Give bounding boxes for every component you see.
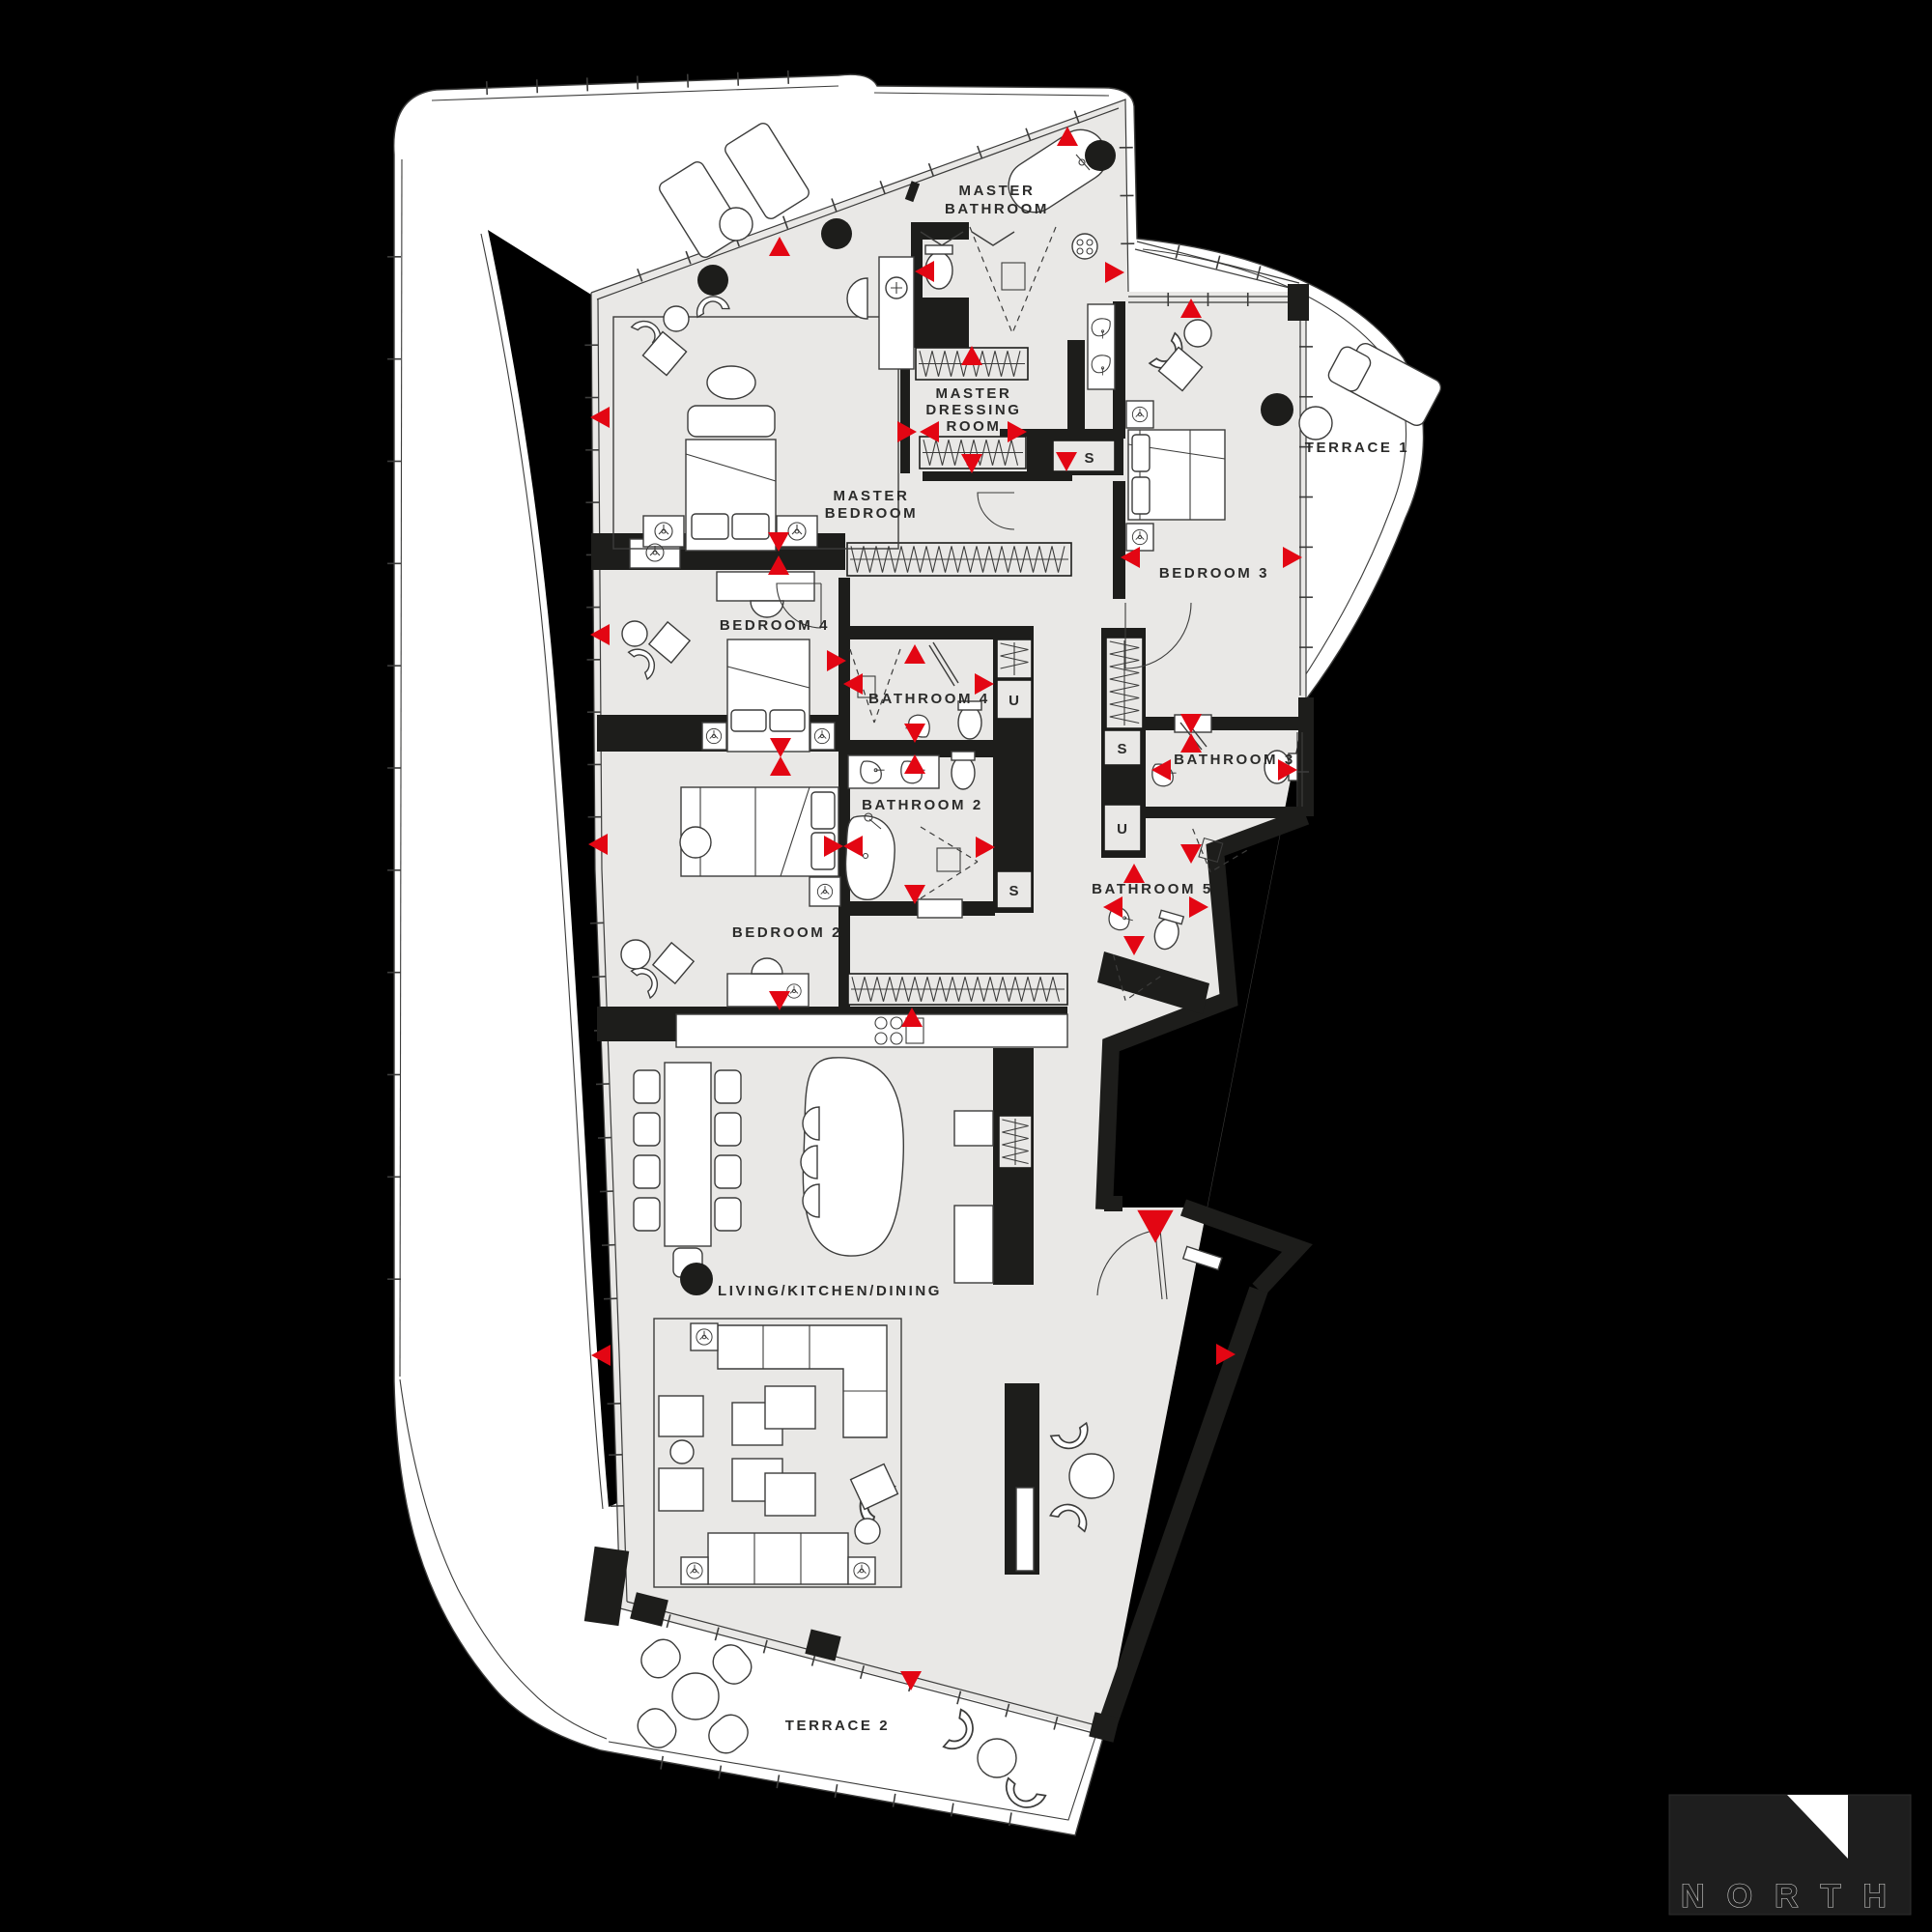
closet-s-bedroom3: S	[1117, 741, 1127, 757]
label-terrace2: TERRACE 2	[785, 1718, 890, 1734]
label-bathroom2: BATHROOM 2	[862, 797, 983, 813]
label-master-dressing-3: ROOM	[946, 418, 1001, 435]
closet-u-bathrooms: U	[1009, 693, 1020, 709]
label-master-dressing-1: MASTER	[936, 385, 1012, 402]
label-bathroom4: BATHROOM 4	[868, 691, 990, 707]
north-logo: NORTH	[1669, 1795, 1911, 1915]
label-bedroom4: BEDROOM 4	[720, 617, 830, 634]
label-terrace1: TERRACE 1	[1305, 440, 1409, 456]
label-master-dressing-2: DRESSING	[925, 402, 1021, 418]
label-bedroom3: BEDROOM 3	[1159, 565, 1269, 582]
closet-s-bathrooms: S	[1009, 883, 1019, 899]
floorplan-canvas: S U S S U	[0, 0, 1932, 1932]
north-logo-text: NORTH	[1681, 1878, 1909, 1915]
label-living-kitchen-dining: LIVING/KITCHEN/DINING	[718, 1283, 942, 1299]
label-bathroom5: BATHROOM 5	[1092, 881, 1213, 897]
label-bathroom3: BATHROOM 3	[1174, 752, 1295, 768]
label-master-bedroom-1: MASTER	[834, 488, 910, 504]
closet-s-corridor: S	[1084, 450, 1094, 467]
closet-u-bedroom3: U	[1117, 821, 1128, 838]
label-master-bathroom-2: BATHROOM	[945, 201, 1049, 217]
label-bedroom2: BEDROOM 2	[732, 924, 842, 941]
label-master-bedroom-2: BEDROOM	[825, 505, 919, 522]
label-master-bathroom: MASTER	[959, 183, 1036, 199]
floorplan-page: S U S S U	[0, 0, 1932, 1932]
